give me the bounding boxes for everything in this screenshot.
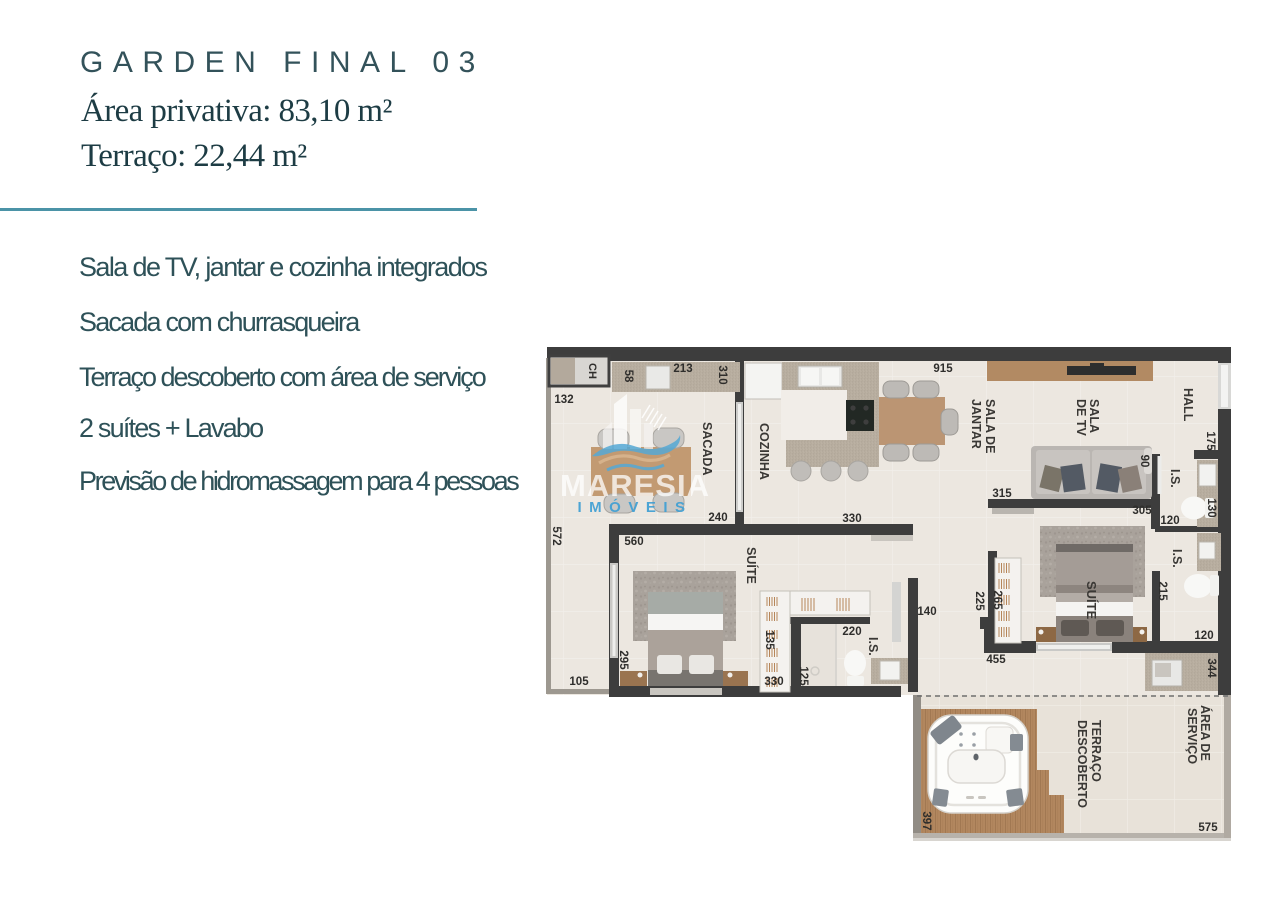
svg-text:175: 175 xyxy=(1204,431,1216,451)
svg-text:330: 330 xyxy=(764,676,783,688)
svg-text:310: 310 xyxy=(716,365,728,384)
svg-text:125: 125 xyxy=(797,666,809,686)
svg-text:315: 315 xyxy=(992,488,1012,500)
svg-text:JANTAR: JANTAR xyxy=(969,399,983,449)
svg-text:COZINHA: COZINHA xyxy=(757,423,771,480)
svg-text:305: 305 xyxy=(1132,505,1152,517)
svg-text:225: 225 xyxy=(973,591,985,611)
svg-text:140: 140 xyxy=(917,606,936,618)
svg-text:213: 213 xyxy=(673,363,692,375)
svg-text:215: 215 xyxy=(1156,581,1168,601)
svg-text:ÁREA DE: ÁREA DE xyxy=(1198,705,1213,761)
svg-text:132: 132 xyxy=(554,394,573,406)
svg-text:SUÍTE: SUÍTE xyxy=(1084,581,1099,620)
svg-text:455: 455 xyxy=(986,654,1006,666)
svg-text:SUÍTE: SUÍTE xyxy=(744,547,759,584)
svg-text:120: 120 xyxy=(1160,515,1179,527)
svg-text:295: 295 xyxy=(617,650,629,670)
svg-text:560: 560 xyxy=(624,536,643,548)
svg-text:IMÓVEIS: IMÓVEIS xyxy=(577,498,692,516)
svg-text:DE TV: DE TV xyxy=(1074,399,1088,436)
svg-text:220: 220 xyxy=(842,626,861,638)
svg-text:I.S.: I.S. xyxy=(1168,469,1182,488)
svg-text:CH: CH xyxy=(586,363,598,379)
svg-text:397: 397 xyxy=(920,811,932,830)
svg-text:130: 130 xyxy=(1205,498,1217,517)
svg-text:I.S.: I.S. xyxy=(866,637,880,656)
svg-text:58: 58 xyxy=(622,370,634,383)
svg-text:105: 105 xyxy=(569,676,589,688)
svg-text:I.S.: I.S. xyxy=(1170,549,1184,568)
svg-text:DESCOBERTO: DESCOBERTO xyxy=(1075,720,1089,808)
svg-text:135: 135 xyxy=(763,630,775,650)
svg-text:SALA DE: SALA DE xyxy=(983,399,997,453)
svg-text:MARESIA: MARESIA xyxy=(560,468,710,503)
svg-text:265: 265 xyxy=(991,590,1003,610)
svg-text:344: 344 xyxy=(1205,658,1217,678)
svg-text:90: 90 xyxy=(1138,455,1150,468)
svg-text:HALL: HALL xyxy=(1181,388,1195,422)
svg-text:240: 240 xyxy=(708,512,727,524)
svg-text:575: 575 xyxy=(1198,822,1218,834)
svg-text:SERVIÇO: SERVIÇO xyxy=(1185,708,1199,764)
svg-text:120: 120 xyxy=(1194,630,1213,642)
svg-text:330: 330 xyxy=(842,513,861,525)
svg-text:915: 915 xyxy=(933,363,953,375)
svg-text:TERRAÇO: TERRAÇO xyxy=(1089,720,1103,782)
svg-text:572: 572 xyxy=(550,526,562,545)
svg-text:SALA: SALA xyxy=(1087,399,1101,433)
